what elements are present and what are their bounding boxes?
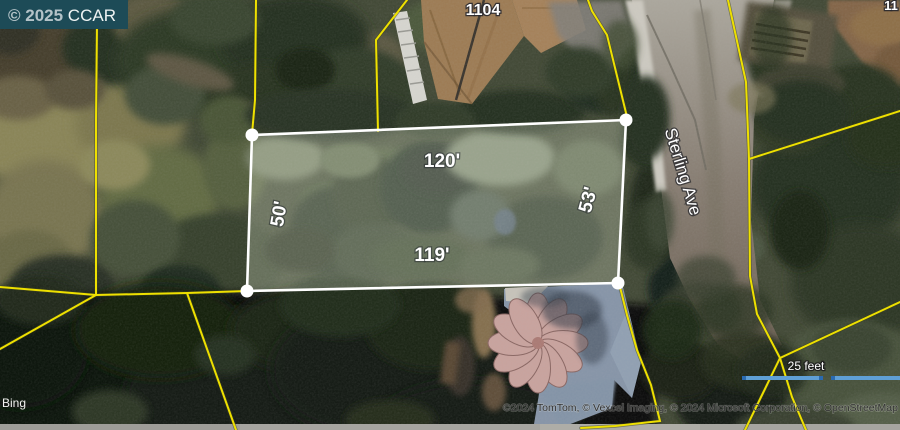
svg-text:©2024 TomTom, © Vexcel Imaging: ©2024 TomTom, © Vexcel Imaging, © 2024 M… <box>503 402 898 414</box>
svg-text:119': 119' <box>414 245 449 266</box>
svg-text:120': 120' <box>424 151 460 172</box>
svg-text:Bing: Bing <box>2 396 26 410</box>
svg-text:© 2025 CCAR: © 2025 CCAR <box>8 6 116 25</box>
svg-text:11: 11 <box>884 0 898 13</box>
svg-text:50': 50' <box>267 199 292 228</box>
svg-text:1104: 1104 <box>466 2 501 19</box>
svg-text:25 feet: 25 feet <box>788 359 825 373</box>
